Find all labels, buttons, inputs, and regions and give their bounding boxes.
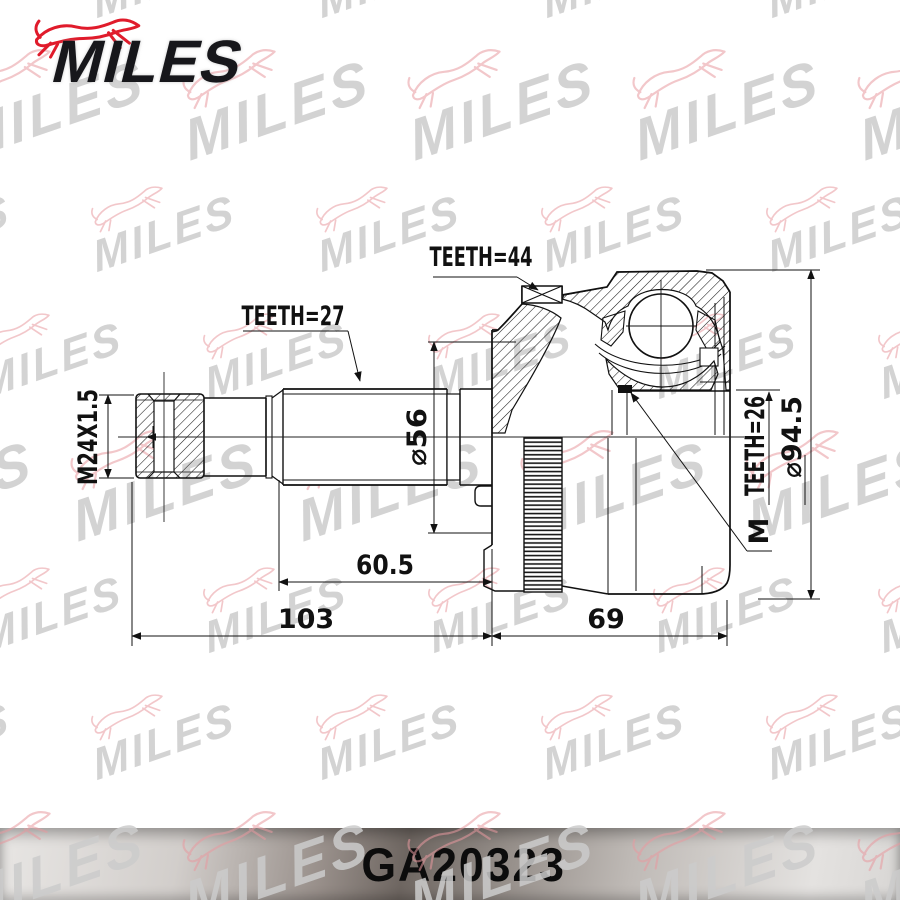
label-len69: 69 [587,604,625,635]
dimension-len103-69 [132,482,727,646]
label-len103: 103 [278,604,334,635]
label-dia56: ⌀56 [402,408,433,466]
technical-drawing: TEETH=44 TEETH=27 M24X1.5 ⌀56 TEETH=26 ⌀… [0,0,900,828]
label-teeth26: TEETH=26 [740,396,771,496]
part-number-bar: GA20323 [0,828,900,900]
abs-reluctor-ring [524,438,562,592]
label-len605: 60.5 [356,550,414,581]
label-marker-m: M [744,518,775,545]
label-teeth44: TEETH=44 [430,242,533,273]
brand-name: MILES [47,32,250,92]
bell-bottom-contour [562,437,730,594]
inner-race [606,359,730,435]
part-number: GA20323 [362,841,566,888]
label-teeth27: TEETH=27 [242,301,345,332]
page: MILESMILESMILESMILESMILESMILESMILESMILES… [0,0,900,900]
boot-groove [475,486,524,591]
brand-logo: MILES [24,10,324,120]
snap-ring [618,385,632,393]
dimension-teeth27 [243,331,360,381]
threaded-stub [136,394,204,478]
label-thread-size: M24X1.5 [73,389,104,485]
label-dia945: ⌀94.5 [777,396,808,478]
